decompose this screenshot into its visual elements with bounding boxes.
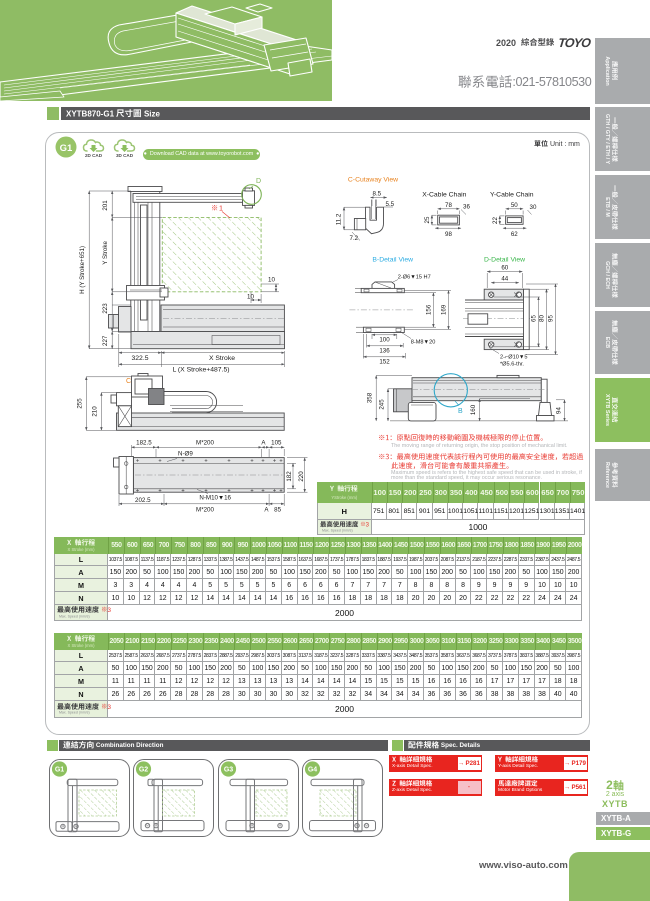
svg-text:7.2: 7.2 xyxy=(350,235,359,242)
svg-text:G1: G1 xyxy=(60,143,73,154)
svg-text:M: M xyxy=(61,825,64,829)
svg-text:60: 60 xyxy=(501,265,508,272)
svg-text:85: 85 xyxy=(274,506,281,513)
svg-text:95: 95 xyxy=(548,315,555,322)
svg-text:62: 62 xyxy=(511,231,518,238)
svg-text:B-Detail View: B-Detail View xyxy=(372,257,413,264)
svg-text:G3: G3 xyxy=(223,767,232,774)
svg-text:30: 30 xyxy=(530,204,537,211)
svg-text:L (X Stroke+487.5): L (X Stroke+487.5) xyxy=(173,367,230,374)
svg-text:8-M8▼20: 8-M8▼20 xyxy=(411,339,436,345)
svg-text:98: 98 xyxy=(445,231,452,238)
svg-text:M*200: M*200 xyxy=(196,506,214,513)
svg-text:94: 94 xyxy=(555,407,562,414)
svg-text:11.2: 11.2 xyxy=(336,213,343,225)
svg-text:A: A xyxy=(264,506,269,513)
svg-text:Y-Cable Chain: Y-Cable Chain xyxy=(490,192,534,199)
svg-text:227: 227 xyxy=(102,335,109,346)
svg-text:136: 136 xyxy=(379,347,390,354)
svg-text:156: 156 xyxy=(426,304,433,315)
svg-text:210: 210 xyxy=(92,406,99,417)
svg-text:Y Stroke: Y Stroke xyxy=(102,241,109,265)
svg-text:152: 152 xyxy=(379,358,390,365)
svg-text:G2: G2 xyxy=(139,767,148,774)
svg-text:182.5: 182.5 xyxy=(136,440,152,447)
svg-text:2-Ø6▼15 H7: 2-Ø6▼15 H7 xyxy=(398,275,431,281)
svg-text:M: M xyxy=(155,824,158,828)
svg-text:B: B xyxy=(458,408,463,415)
svg-text:G1: G1 xyxy=(54,767,63,774)
svg-text:100: 100 xyxy=(379,336,390,343)
svg-text:D-Detail View: D-Detail View xyxy=(484,257,525,264)
svg-text:160: 160 xyxy=(470,404,477,415)
svg-text:A: A xyxy=(261,440,266,447)
svg-text:G4: G4 xyxy=(307,767,316,774)
svg-text:44: 44 xyxy=(501,276,508,283)
svg-text:220: 220 xyxy=(298,471,305,482)
svg-text:255: 255 xyxy=(77,398,84,409)
svg-text:TOYO: TOYO xyxy=(558,36,592,50)
svg-text:H (Y Stroke+651): H (Y Stroke+651) xyxy=(79,246,86,294)
svg-text:M: M xyxy=(146,824,149,828)
svg-text:M*200: M*200 xyxy=(196,440,214,447)
svg-text:358: 358 xyxy=(367,392,374,403)
svg-text:8.5: 8.5 xyxy=(373,190,382,197)
svg-text:10: 10 xyxy=(247,294,254,301)
svg-text:C-Cutaway View: C-Cutaway View xyxy=(348,177,398,184)
svg-text:223: 223 xyxy=(102,303,109,314)
svg-text:X-Cable Chain: X-Cable Chain xyxy=(422,192,466,199)
svg-text:*Ø5.6-thr.: *Ø5.6-thr. xyxy=(500,362,524,368)
svg-text:2D CAD: 2D CAD xyxy=(85,153,103,158)
svg-text:M: M xyxy=(365,824,368,828)
svg-text:M: M xyxy=(355,824,358,828)
svg-text:2-⌐Ø10▼5: 2-⌐Ø10▼5 xyxy=(500,355,527,361)
svg-text:202.5: 202.5 xyxy=(135,497,151,504)
svg-text:105: 105 xyxy=(271,440,282,447)
svg-text:C: C xyxy=(126,378,131,385)
svg-text:78: 78 xyxy=(445,202,452,209)
svg-text:245: 245 xyxy=(378,399,385,410)
svg-text:10: 10 xyxy=(268,277,275,284)
svg-text:1: 1 xyxy=(219,204,223,213)
svg-text:M: M xyxy=(278,824,281,828)
svg-text:X Stroke: X Stroke xyxy=(209,355,235,362)
svg-text:65: 65 xyxy=(531,315,538,322)
svg-text:322.5: 322.5 xyxy=(131,355,148,362)
svg-text:201: 201 xyxy=(102,200,109,211)
svg-text:36: 36 xyxy=(463,203,470,210)
svg-text:N-M10▼16: N-M10▼16 xyxy=(199,495,231,502)
svg-text:25: 25 xyxy=(424,216,431,223)
svg-text:M: M xyxy=(74,825,77,829)
svg-text:22: 22 xyxy=(492,217,499,224)
svg-text:80: 80 xyxy=(539,315,546,322)
svg-text:169: 169 xyxy=(441,304,448,315)
svg-text:N-Ø9: N-Ø9 xyxy=(178,451,193,458)
svg-text:D: D xyxy=(256,178,261,185)
svg-text:182: 182 xyxy=(286,471,293,482)
svg-text:3D CAD: 3D CAD xyxy=(116,153,134,158)
svg-text:M: M xyxy=(250,824,253,828)
svg-text:50: 50 xyxy=(511,202,518,209)
